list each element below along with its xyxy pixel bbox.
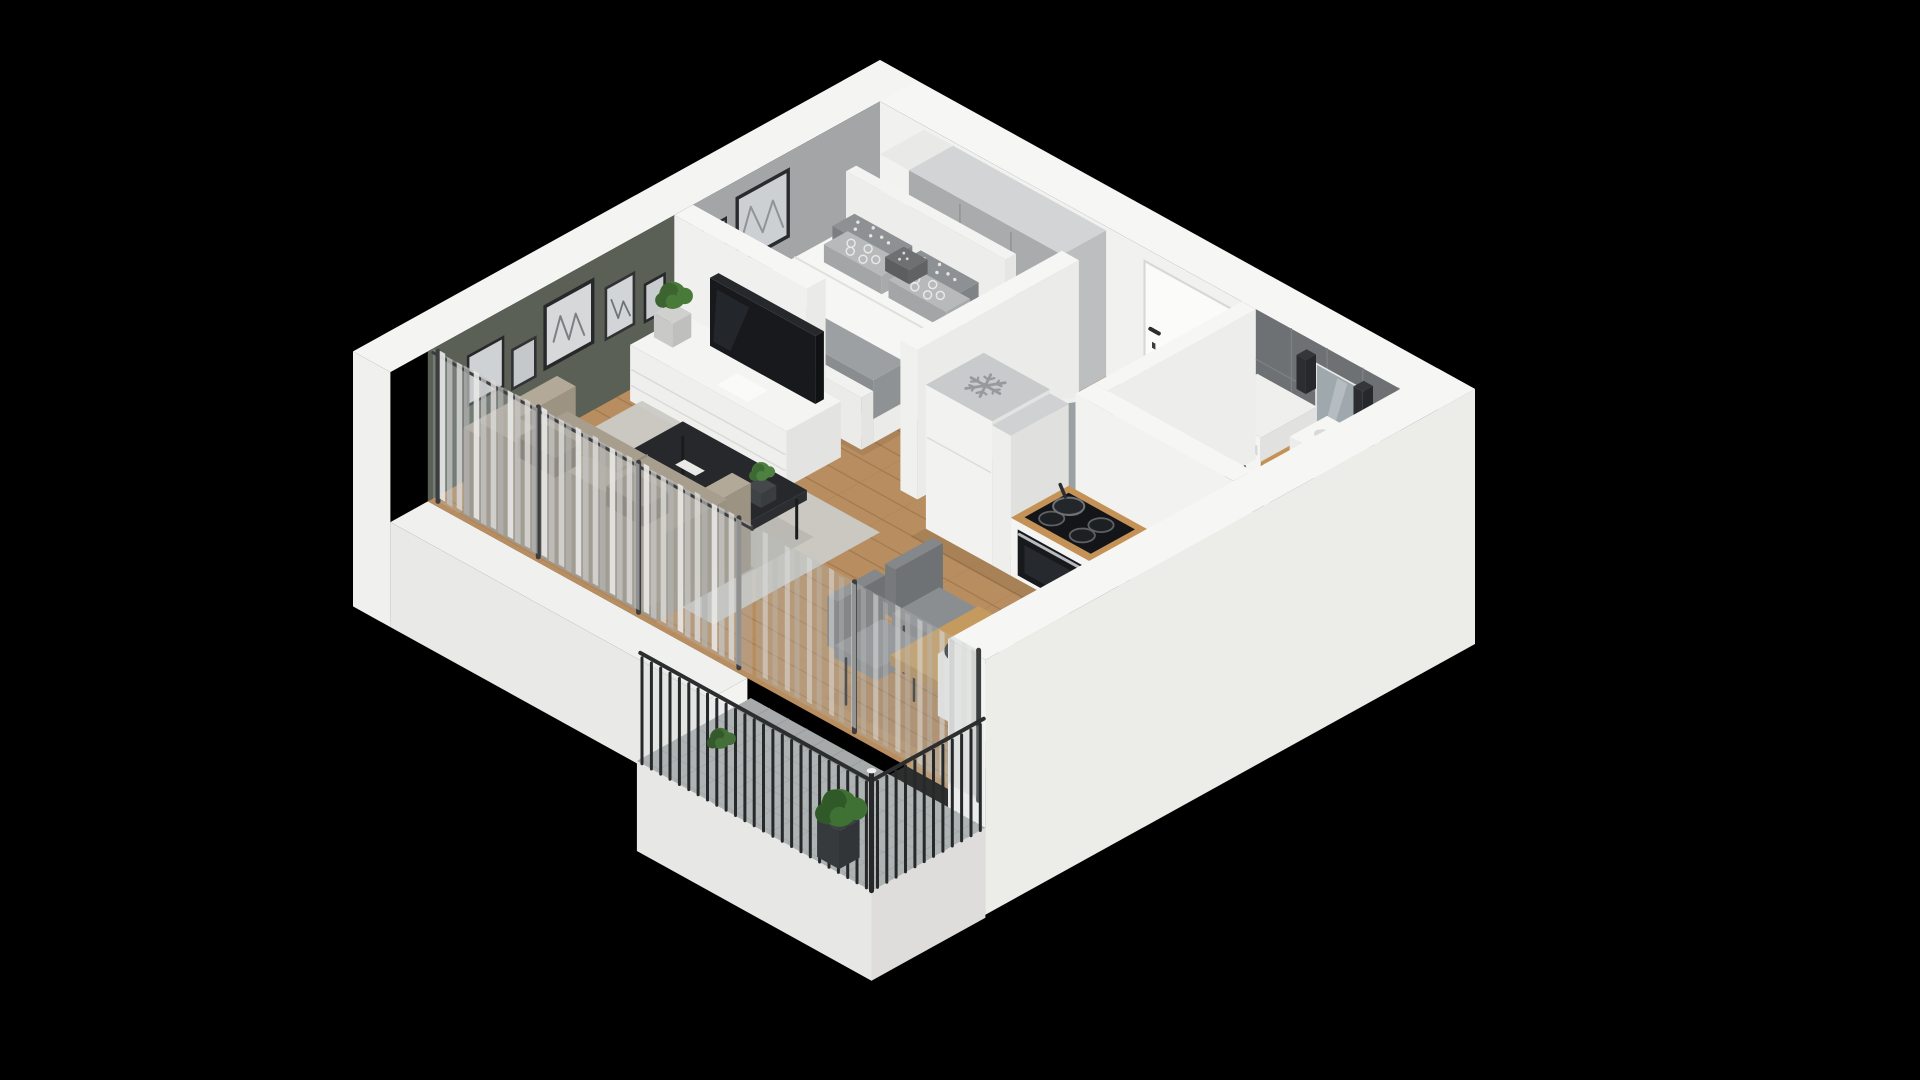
sconce-left bbox=[1297, 349, 1317, 394]
burner-4 bbox=[1070, 529, 1095, 543]
frying-pan bbox=[1053, 498, 1084, 515]
corner-post-cap bbox=[867, 768, 877, 773]
floorplan-figure bbox=[0, 0, 1920, 1080]
floorplan-svg bbox=[0, 0, 1920, 1080]
nw-wall-endcap bbox=[353, 351, 390, 627]
burner-2 bbox=[1088, 518, 1113, 532]
